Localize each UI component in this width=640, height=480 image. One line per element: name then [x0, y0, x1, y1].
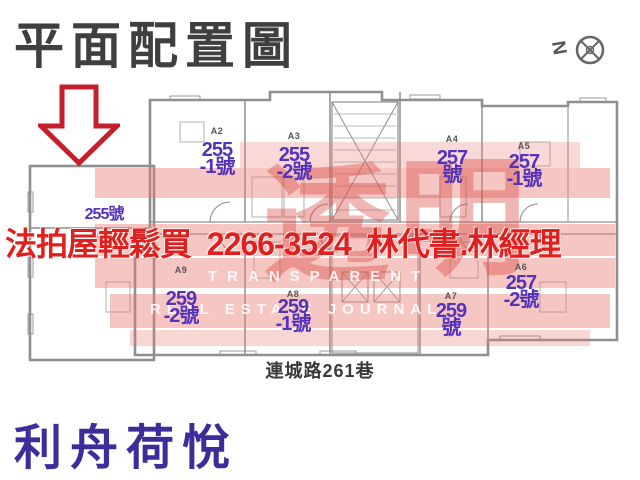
unit-label-255-2: A3 255 -2號: [277, 131, 312, 181]
compass-letter: N: [547, 39, 570, 56]
page-title: 平面配置圖: [14, 6, 299, 78]
watermark-text: TRANSPARENT: [208, 268, 430, 285]
watermark-stripe: [130, 330, 590, 346]
unit-label-255-1: A2 255 -1號: [200, 126, 235, 176]
agent-ad-text: 法拍屋輕鬆買 2266-3524 林代書.林經理: [5, 219, 561, 265]
highlight-arrow-icon: [38, 84, 120, 166]
unit-label-257-2: A6 257 -2號: [504, 262, 539, 309]
unit-label-259-1: A8 259 -1號: [276, 289, 311, 333]
compass-icon: N: [546, 24, 616, 72]
floorplan-page: 平面配置圖 N: [0, 0, 640, 480]
unit-label-257: A4 257 號: [437, 134, 467, 184]
unit-label-259: A7 259 號: [436, 291, 466, 337]
unit-label-259-2: A9 259 -2號: [164, 265, 199, 325]
street-label: 連城路261巷: [265, 357, 374, 383]
building-name: 利舟荷悅: [14, 408, 238, 478]
unit-label-257-1: A5 257 -1號: [507, 141, 542, 188]
